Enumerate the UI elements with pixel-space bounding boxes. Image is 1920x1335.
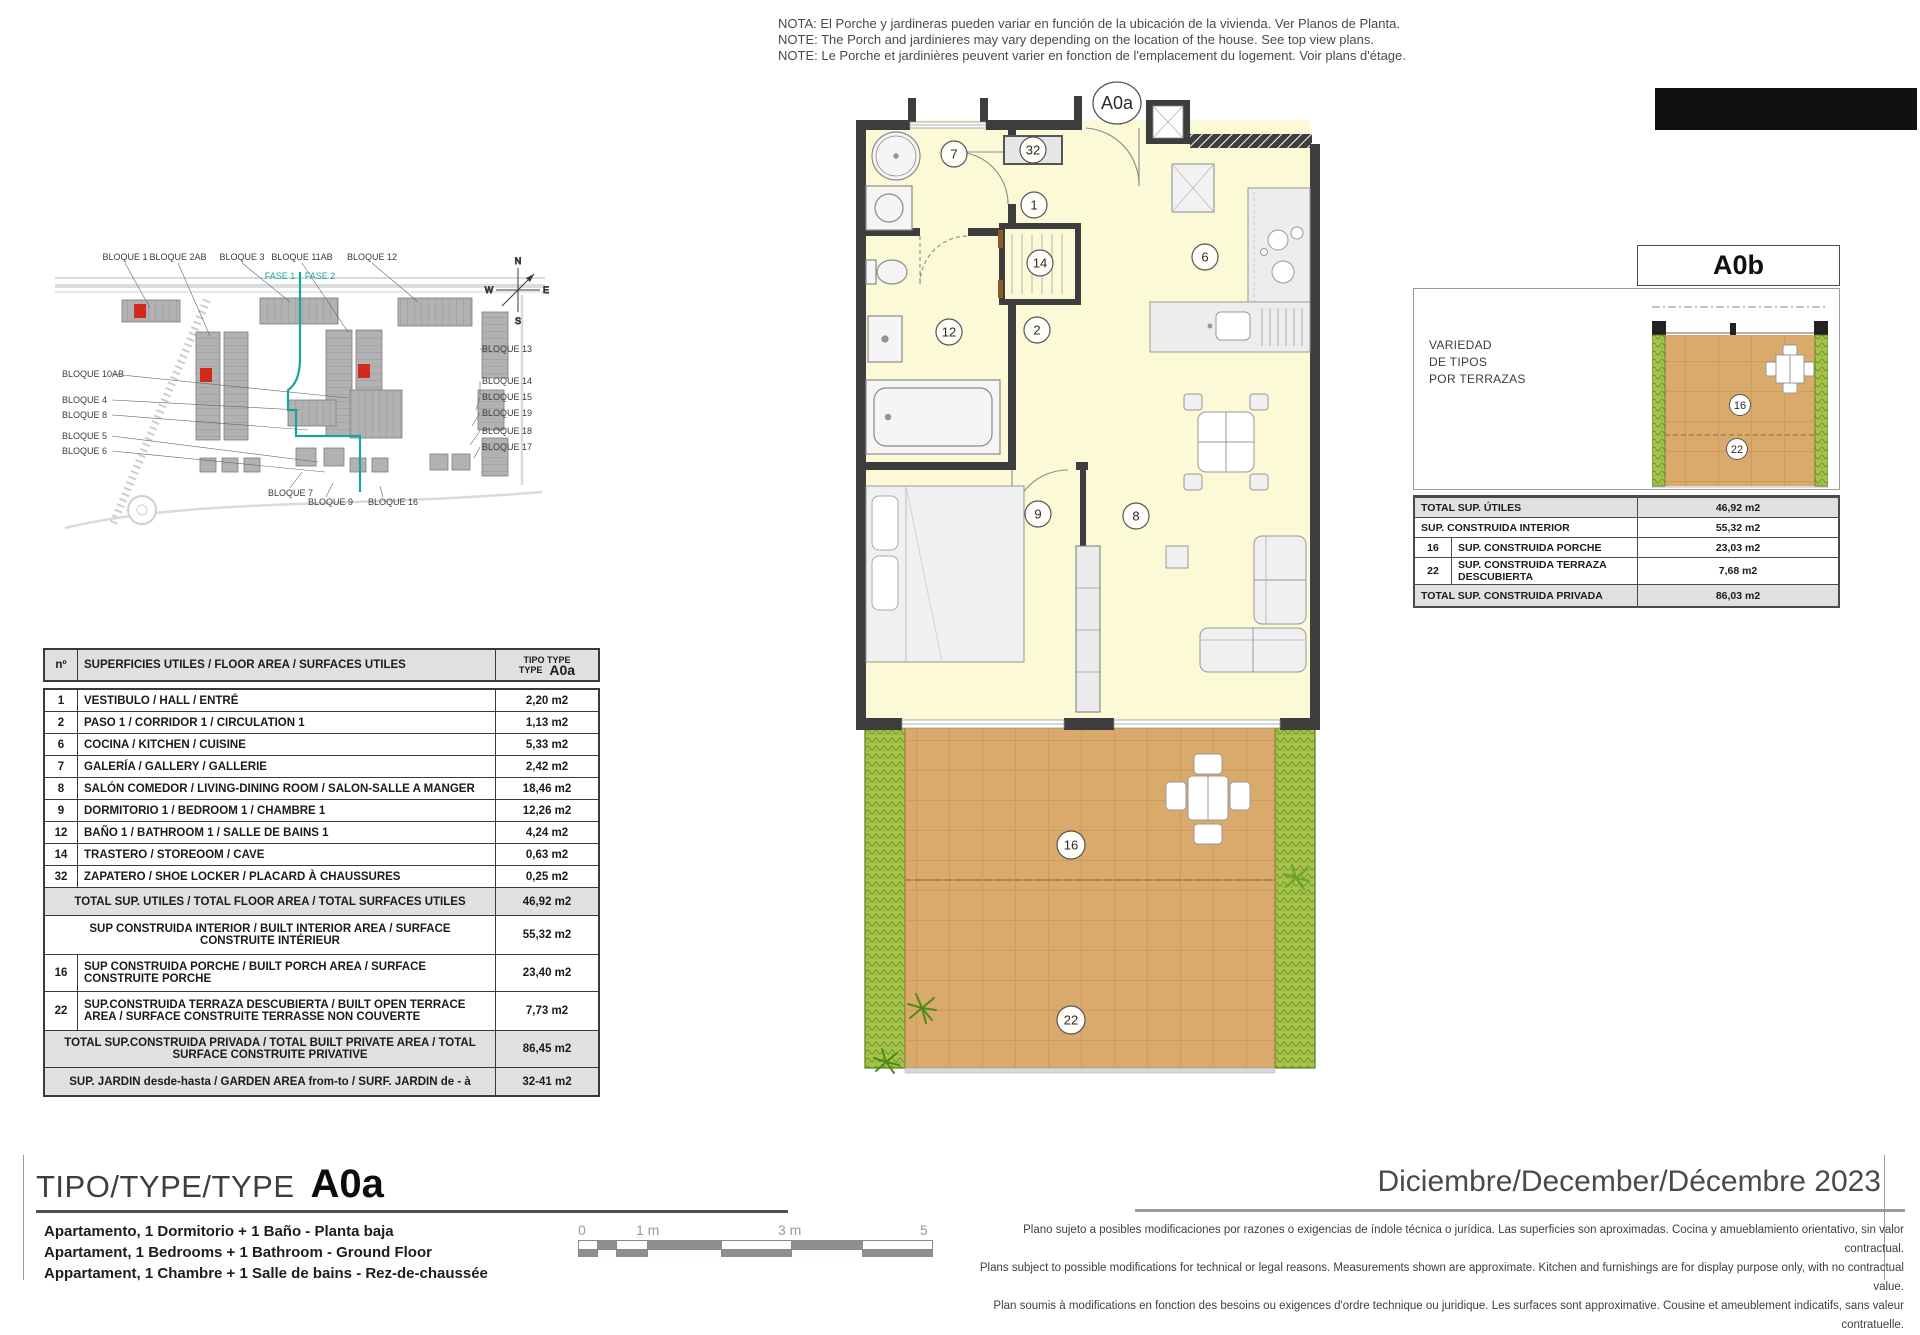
cell-label: SUP.CONSTRUIDA TERRAZA DESCUBIERTA / BUI… xyxy=(78,992,496,1030)
scale-segment xyxy=(647,1241,721,1249)
variant-row: 22SUP. CONSTRUIDA TERRAZA DESCUBIERTA7,6… xyxy=(1415,557,1838,584)
cell-value: 12,26 m2 xyxy=(496,800,598,821)
site-block-label: BLOQUE 5 xyxy=(62,431,107,441)
cell-number: 22 xyxy=(1415,558,1452,584)
cell-number: 2 xyxy=(45,712,78,733)
site-block-label: BLOQUE 13 xyxy=(482,344,532,354)
cell-number: 16 xyxy=(1415,538,1452,557)
variant-row: TOTAL SUP. CONSTRUIDA PRIVADA86,03 m2 xyxy=(1415,584,1838,606)
scale-tick-label: 3 m xyxy=(778,1222,801,1238)
svg-text:16: 16 xyxy=(1734,400,1746,412)
cell-number: 1 xyxy=(45,690,78,711)
svg-text:A0a: A0a xyxy=(1101,93,1134,113)
table-row: 1VESTIBULO / HALL / ENTRÉ2,20 m2 xyxy=(45,690,598,711)
floor-plan: A0a 7321146122981622 xyxy=(850,80,1330,1080)
table-row: 16SUP CONSTRUIDA PORCHE / BUILT PORCH AR… xyxy=(45,954,598,991)
cell-label: PASO 1 / CORRIDOR 1 / CIRCULATION 1 xyxy=(78,712,496,733)
header-num: nº xyxy=(45,650,78,680)
variant-caption: VARIEDAD DE TIPOS POR TERRAZAS xyxy=(1429,337,1526,388)
site-block-label: BLOQUE 16 xyxy=(368,497,418,507)
table-row: TOTAL SUP. UTILES / TOTAL FLOOR AREA / T… xyxy=(45,887,598,915)
divider-left xyxy=(36,1210,788,1213)
cell-label: COCINA / KITCHEN / CUISINE xyxy=(78,734,496,755)
cell-label: SUP. CONSTRUIDA INTERIOR xyxy=(1415,518,1638,537)
table-row: 8SALÓN COMEDOR / LIVING-DINING ROOM / SA… xyxy=(45,777,598,799)
planter-right xyxy=(1275,728,1315,1068)
cell-label: SALÓN COMEDOR / LIVING-DINING ROOM / SAL… xyxy=(78,778,496,799)
room-number-label: 7 xyxy=(950,147,957,162)
scale-tick-label: 0 xyxy=(578,1222,586,1238)
cell-label: TOTAL SUP. UTILES / TOTAL FLOOR AREA / T… xyxy=(45,888,496,915)
site-block-label: BLOQUE 1 xyxy=(102,252,147,262)
svg-text:W: W xyxy=(485,285,494,295)
cell-value: 23,03 m2 xyxy=(1638,538,1838,557)
table-row: 14TRASTERO / STOREOOM / CAVE0,63 m2 xyxy=(45,843,598,865)
cell-label: SUP. CONSTRUIDA PORCHE xyxy=(1452,538,1638,557)
disclaimer: Plano sujeto a posibles modificaciones p… xyxy=(964,1221,1904,1335)
table-row: 12BAÑO 1 / BATHROOM 1 / SALLE DE BAINS 1… xyxy=(45,821,598,843)
cell-number: 22 xyxy=(45,992,78,1030)
table-row: SUP. JARDIN desde-hasta / GARDEN AREA fr… xyxy=(45,1067,598,1095)
wardrobe xyxy=(1076,546,1100,712)
cell-value: 5,33 m2 xyxy=(496,734,598,755)
bed xyxy=(866,486,1024,662)
cell-value: 0,25 m2 xyxy=(496,866,598,887)
scale-bar: 01 m3 m5 m xyxy=(578,1222,934,1257)
planter-left xyxy=(865,728,905,1068)
site-block-label: BLOQUE 3 xyxy=(219,252,264,262)
table-row: 32ZAPATERO / SHOE LOCKER / PLACARD À CHA… xyxy=(45,865,598,887)
divider-right xyxy=(1135,1209,1905,1212)
site-block-label: BLOQUE 18 xyxy=(482,426,532,436)
table-row: 9DORMITORIO 1 / BEDROOM 1 / CHAMBRE 112,… xyxy=(45,799,598,821)
type-title: TIPO/TYPE/TYPE A0a xyxy=(36,1162,384,1207)
cell-number: 14 xyxy=(45,844,78,865)
cell-label: DORMITORIO 1 / BEDROOM 1 / CHAMBRE 1 xyxy=(78,800,496,821)
cell-value: 2,20 m2 xyxy=(496,690,598,711)
site-block-label: BLOQUE 17 xyxy=(482,442,532,452)
svg-text:22: 22 xyxy=(1731,444,1743,456)
cell-value: 86,45 m2 xyxy=(496,1031,598,1067)
room-number-label: 2 xyxy=(1033,323,1040,338)
cell-label: TOTAL SUP. CONSTRUIDA PRIVADA xyxy=(1415,585,1638,606)
site-block-label: BLOQUE 9 xyxy=(308,497,353,507)
cell-number: 6 xyxy=(45,734,78,755)
variant-row: TOTAL SUP. ÚTILES46,92 m2 xyxy=(1415,497,1838,517)
cell-label: SUP. JARDIN desde-hasta / GARDEN AREA fr… xyxy=(45,1068,496,1095)
cell-label: BAÑO 1 / BATHROOM 1 / SALLE DE BAINS 1 xyxy=(78,822,496,843)
terrace-floor xyxy=(905,880,1275,1068)
type-title-code: A0a xyxy=(311,1162,384,1207)
scale-segment xyxy=(597,1241,616,1249)
room-number-label: 6 xyxy=(1201,250,1208,265)
site-block-label: BLOQUE 6 xyxy=(62,446,107,456)
variant-table: TOTAL SUP. ÚTILES46,92 m2SUP. CONSTRUIDA… xyxy=(1413,495,1840,608)
note-line-en: NOTE: The Porch and jardinieres may vary… xyxy=(778,32,1406,48)
scale-segment xyxy=(862,1250,932,1258)
scale-segment xyxy=(597,1250,616,1258)
cell-value: 46,92 m2 xyxy=(1638,498,1838,517)
svg-text:N: N xyxy=(515,256,522,266)
scale-segment xyxy=(579,1250,597,1258)
note-line-fr: NOTE: Le Porche et jardinières peuvent v… xyxy=(778,48,1406,64)
table-row: SUP CONSTRUIDA INTERIOR / BUILT INTERIOR… xyxy=(45,915,598,954)
cell-label: GALERÍA / GALLERY / GALLERIE xyxy=(78,756,496,777)
site-block-label: BLOQUE 14 xyxy=(482,376,532,386)
scale-segment xyxy=(721,1241,791,1249)
site-block-label: BLOQUE 7 xyxy=(268,488,313,498)
page-border-left xyxy=(23,1155,24,1280)
site-block-label: BLOQUE 4 xyxy=(62,395,107,405)
site-buildings xyxy=(122,298,508,476)
site-block-label: FASE 1 xyxy=(265,271,296,281)
cell-label: VESTIBULO / HALL / ENTRÉ xyxy=(78,690,496,711)
scale-labels: 01 m3 m5 m xyxy=(578,1222,934,1240)
scale-segment xyxy=(791,1241,862,1249)
cell-number: 9 xyxy=(45,800,78,821)
variant-row: 16SUP. CONSTRUIDA PORCHE23,03 m2 xyxy=(1415,537,1838,557)
site-block-label: BLOQUE 11AB xyxy=(271,252,332,262)
table-row: 7GALERÍA / GALLERY / GALLERIE2,42 m2 xyxy=(45,755,598,777)
scale-segment xyxy=(616,1241,647,1249)
svg-text:E: E xyxy=(543,285,549,295)
site-block-label: BLOQUE 19 xyxy=(482,408,532,418)
room-number-label: 32 xyxy=(1026,143,1040,158)
cell-value: 32-41 m2 xyxy=(496,1068,598,1095)
site-block-label: BLOQUE 2AB xyxy=(149,252,206,262)
header-type-cell: TIPO TYPE TYPE A0a xyxy=(496,650,598,680)
cell-number: 8 xyxy=(45,778,78,799)
svg-text:S: S xyxy=(515,316,521,326)
table-row: 22SUP.CONSTRUIDA TERRAZA DESCUBIERTA / B… xyxy=(45,991,598,1030)
site-block-label: BLOQUE 15 xyxy=(482,392,532,402)
room-number-label: 12 xyxy=(942,325,956,340)
date-label: Diciembre/December/Décembre 2023 xyxy=(1135,1165,1881,1199)
site-block-label: BLOQUE 12 xyxy=(347,252,397,262)
cell-label: TOTAL SUP. ÚTILES xyxy=(1415,498,1638,517)
cell-label: TOTAL SUP.CONSTRUIDA PRIVADA / TOTAL BUI… xyxy=(45,1031,496,1067)
scale-bar-graphic xyxy=(578,1240,933,1257)
cell-value: 23,40 m2 xyxy=(496,955,598,991)
room-number-label: 9 xyxy=(1034,507,1041,522)
scale-segment xyxy=(579,1241,597,1249)
cell-value: 46,92 m2 xyxy=(496,888,598,915)
room-number-label: 1 xyxy=(1030,198,1037,213)
side-table xyxy=(1166,546,1188,568)
scale-tick-label: 1 m xyxy=(636,1222,659,1238)
terrace-zone xyxy=(865,724,1315,1073)
cell-value: 86,03 m2 xyxy=(1638,585,1838,606)
room-number-label: 8 xyxy=(1132,509,1139,524)
cell-label: SUP CONSTRUIDA PORCHE / BUILT PORCH AREA… xyxy=(78,955,496,991)
top-right-wall-fragment xyxy=(1655,88,1917,130)
scale-segment xyxy=(791,1250,862,1258)
top-notes: NOTA: El Porche y jardineras pueden vari… xyxy=(778,16,1406,64)
cell-number: 16 xyxy=(45,955,78,991)
cell-label: TRASTERO / STOREOOM / CAVE xyxy=(78,844,496,865)
variant-terrace-thumb: 16 22 xyxy=(1652,301,1828,490)
cell-value: 0,63 m2 xyxy=(496,844,598,865)
cell-value: 1,13 m2 xyxy=(496,712,598,733)
areas-table-body: 1VESTIBULO / HALL / ENTRÉ2,20 m22PASO 1 … xyxy=(43,688,600,1097)
type-title-prefix: TIPO/TYPE/TYPE xyxy=(36,1169,295,1205)
cell-value: 4,24 m2 xyxy=(496,822,598,843)
cell-number: 32 xyxy=(45,866,78,887)
table-row: 2PASO 1 / CORRIDOR 1 / CIRCULATION 11,13… xyxy=(45,711,598,733)
cell-value: 55,32 m2 xyxy=(496,916,598,954)
header-title: SUPERFICIES UTILES / FLOOR AREA / SURFAC… xyxy=(78,650,496,680)
cell-value: 2,42 m2 xyxy=(496,756,598,777)
type-code: A0a xyxy=(549,665,575,675)
room-number-label: 16 xyxy=(1064,838,1078,853)
site-plan: BLOQUE 1BLOQUE 2ABBLOQUE 3BLOQUE 11ABBLO… xyxy=(50,240,550,530)
room-number-label: 22 xyxy=(1064,1013,1078,1028)
cell-value: 55,32 m2 xyxy=(1638,518,1838,537)
cell-number: 7 xyxy=(45,756,78,777)
apartment-descriptions: Apartamento, 1 Dormitorio + 1 Baño - Pla… xyxy=(44,1221,488,1284)
scale-segment xyxy=(647,1250,721,1258)
site-block-label: FASE 2 xyxy=(305,271,336,281)
cell-label: ZAPATERO / SHOE LOCKER / PLACARD À CHAUS… xyxy=(78,866,496,887)
variant-row: SUP. CONSTRUIDA INTERIOR55,32 m2 xyxy=(1415,517,1838,537)
cell-value: 18,46 m2 xyxy=(496,778,598,799)
table-row: TOTAL SUP.CONSTRUIDA PRIVADA / TOTAL BUI… xyxy=(45,1030,598,1067)
cell-value: 7,73 m2 xyxy=(496,992,598,1030)
scale-segment xyxy=(862,1241,932,1249)
room-number-label: 14 xyxy=(1033,256,1047,271)
cell-value: 7,68 m2 xyxy=(1638,558,1838,584)
cell-number: 12 xyxy=(45,822,78,843)
areas-table-header: nº SUPERFICIES UTILES / FLOOR AREA / SUR… xyxy=(43,648,600,682)
cell-label: SUP. CONSTRUIDA TERRAZA DESCUBIERTA xyxy=(1452,558,1638,584)
plan-title-badge: A0a xyxy=(1093,82,1141,124)
table-row: 6COCINA / KITCHEN / CUISINE5,33 m2 xyxy=(45,733,598,755)
scale-segment xyxy=(616,1250,647,1258)
variant-title: A0b xyxy=(1637,245,1840,286)
note-line-es: NOTA: El Porche y jardineras pueden vari… xyxy=(778,16,1406,32)
cell-label: SUP CONSTRUIDA INTERIOR / BUILT INTERIOR… xyxy=(45,916,496,954)
areas-table: nº SUPERFICIES UTILES / FLOOR AREA / SUR… xyxy=(43,648,600,1097)
site-block-label: BLOQUE 8 xyxy=(62,410,107,420)
scale-segment xyxy=(721,1250,791,1258)
